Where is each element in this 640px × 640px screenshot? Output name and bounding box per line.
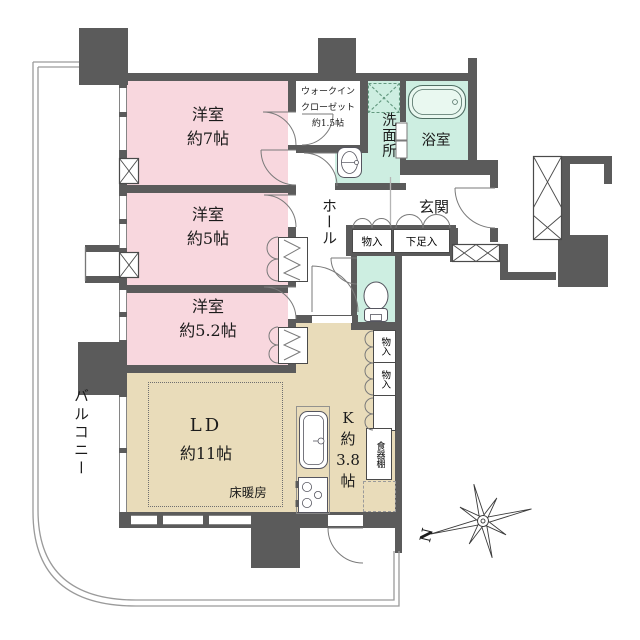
window-mullion [157, 515, 163, 525]
washroom-label: 洗面所 [374, 112, 398, 159]
washroom-fill-lower [335, 153, 368, 183]
wic-line3: 約1.5帖 [294, 117, 362, 133]
kitchen-closet-lower-label: 物入 [380, 370, 390, 389]
window-mullion [119, 312, 127, 317]
bedroom2-name: 洋室 [127, 203, 289, 227]
kitchen-line2: 約 [334, 429, 362, 450]
hall-closet-box: 物入 [352, 229, 392, 253]
common-wall [604, 156, 612, 184]
door-opening [312, 316, 352, 323]
kitchen-line3: 3.8 [334, 450, 362, 471]
common-wall [562, 156, 570, 240]
common-wall [533, 208, 570, 215]
bedroom3-label: 洋室 約5.2帖 [127, 295, 289, 343]
door-opening [288, 195, 296, 227]
bay-cap [85, 276, 119, 283]
door-arc [304, 153, 337, 186]
wall [119, 365, 296, 373]
ld-name: LD [127, 412, 285, 439]
shoe-cabinet-label: 下足入 [406, 234, 438, 249]
wall [288, 145, 368, 153]
kitchen-counter-box [373, 395, 396, 431]
door-opening [288, 287, 296, 319]
walk-in-closet-label: ウォークイン クローゼット 約1.5帖 [294, 85, 362, 132]
wall [335, 183, 406, 190]
wic-line1: ウォークイン [294, 85, 362, 101]
bedroom3-size: 約5.2帖 [127, 319, 289, 343]
door-opening [328, 515, 363, 526]
shoe-cabinet-box: 下足入 [393, 229, 450, 253]
kitchen-closet-upper-label: 物入 [380, 337, 390, 356]
window [119, 397, 127, 512]
window [119, 88, 127, 150]
door-opening [490, 188, 498, 228]
window-mullion [119, 219, 127, 224]
window-mullion [119, 112, 127, 117]
floor-plan: 物入 下足入 物入 物入 食器棚 [0, 0, 640, 640]
floor-heating-label: 床暖房 [196, 484, 300, 503]
refrigerator-space [363, 481, 396, 512]
window-mullion [203, 515, 209, 525]
hall-label: ホール [318, 198, 340, 246]
entrance-label: 玄関 [402, 196, 466, 219]
kitchen-label: K 約 3.8 帖 [334, 408, 362, 492]
living-dining-label: LD 約11帖 [127, 412, 285, 466]
bedroom1-size: 約7帖 [127, 127, 289, 151]
hall-closet-label: 物入 [362, 234, 383, 249]
cupboard-box: 食器棚 [366, 428, 392, 480]
wall [119, 185, 296, 193]
pillar [558, 235, 608, 287]
kitchen-line4: 帖 [334, 471, 362, 492]
compass-rose-icon [421, 472, 540, 571]
kitchen-closet-upper-box: 物入 [373, 330, 396, 363]
balcony-label: バルコニー [66, 388, 92, 478]
pillar [318, 38, 356, 75]
door-opening [288, 150, 296, 185]
wall [119, 73, 477, 81]
ld-size: 約11帖 [127, 442, 285, 466]
common-wall [500, 272, 556, 280]
door-arc [328, 528, 363, 563]
pillar [79, 28, 128, 85]
toilet-fill [356, 256, 395, 322]
kitchen-closet-lower-box: 物入 [373, 362, 396, 396]
bedroom1-label: 洋室 約7帖 [127, 103, 289, 151]
wall [119, 285, 296, 293]
cupboard-label: 食器棚 [375, 441, 384, 468]
window [131, 515, 251, 525]
kitchen-line1: K [334, 408, 362, 429]
bedroom3-name: 洋室 [127, 295, 289, 319]
window-mullion [119, 448, 127, 453]
bedroom1-name: 洋室 [127, 103, 289, 127]
wall [395, 253, 402, 553]
wic-line2: クローゼット [294, 101, 362, 117]
north-label: N [414, 526, 439, 545]
bay-cap [85, 245, 119, 252]
bedroom2-label: 洋室 約5帖 [127, 203, 289, 251]
bathroom-label: 浴室 [404, 131, 468, 153]
wall [468, 58, 477, 160]
bedroom2-size: 約5帖 [127, 227, 289, 251]
wall [400, 160, 498, 175]
pillar [251, 512, 300, 568]
